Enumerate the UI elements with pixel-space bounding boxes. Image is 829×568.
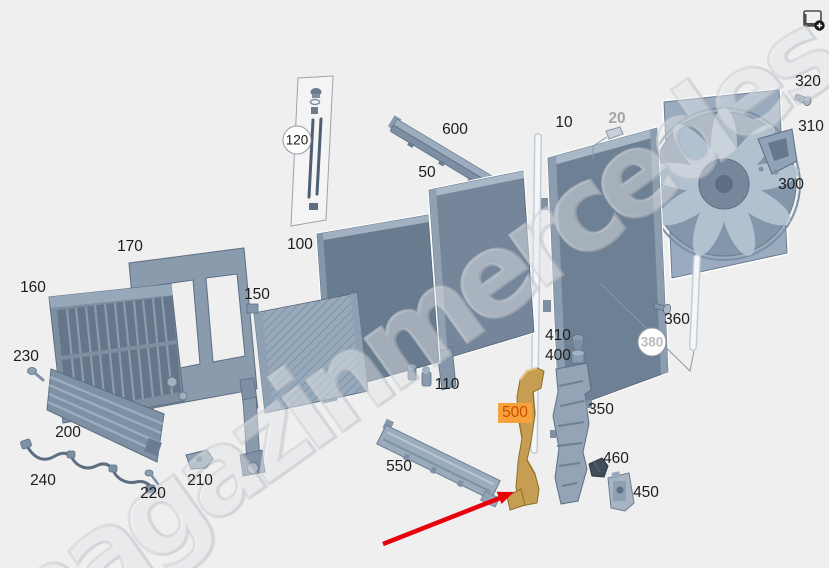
part-label-150[interactable]: 150 <box>244 286 270 304</box>
part-label-120[interactable]: 120 <box>283 126 312 155</box>
part-label-20[interactable]: 20 <box>608 110 625 128</box>
part-label-210[interactable]: 210 <box>187 472 213 490</box>
part-label-550[interactable]: 550 <box>386 458 412 476</box>
part-label-500[interactable]: 500 <box>498 403 532 423</box>
part-label-100[interactable]: 100 <box>287 236 313 254</box>
part-label-200[interactable]: 200 <box>55 424 81 442</box>
part-label-460[interactable]: 460 <box>603 450 629 468</box>
part-label-10[interactable]: 10 <box>555 114 572 132</box>
part-label-350[interactable]: 350 <box>588 401 614 419</box>
part-labels-layer: 1602302002402202101701501001206005010203… <box>0 0 829 568</box>
part-label-170[interactable]: 170 <box>117 238 143 256</box>
part-label-380[interactable]: 380 <box>638 328 667 357</box>
part-label-450[interactable]: 450 <box>633 484 659 502</box>
part-label-400[interactable]: 400 <box>545 347 571 365</box>
part-label-320[interactable]: 320 <box>795 73 821 91</box>
part-label-300[interactable]: 300 <box>778 176 804 194</box>
part-label-110[interactable]: 110 <box>435 376 460 394</box>
part-label-230[interactable]: 230 <box>13 348 39 366</box>
part-label-410[interactable]: 410 <box>545 327 571 345</box>
part-label-50[interactable]: 50 <box>418 164 435 182</box>
part-label-600[interactable]: 600 <box>442 121 468 139</box>
part-label-360[interactable]: 360 <box>664 311 690 329</box>
parts-diagram-page: magazinmercedes.ru 160230200240220210170… <box>0 0 829 568</box>
part-label-160[interactable]: 160 <box>20 279 46 297</box>
part-label-240[interactable]: 240 <box>30 472 56 490</box>
part-label-220[interactable]: 220 <box>140 485 166 503</box>
part-label-310[interactable]: 310 <box>798 118 824 136</box>
